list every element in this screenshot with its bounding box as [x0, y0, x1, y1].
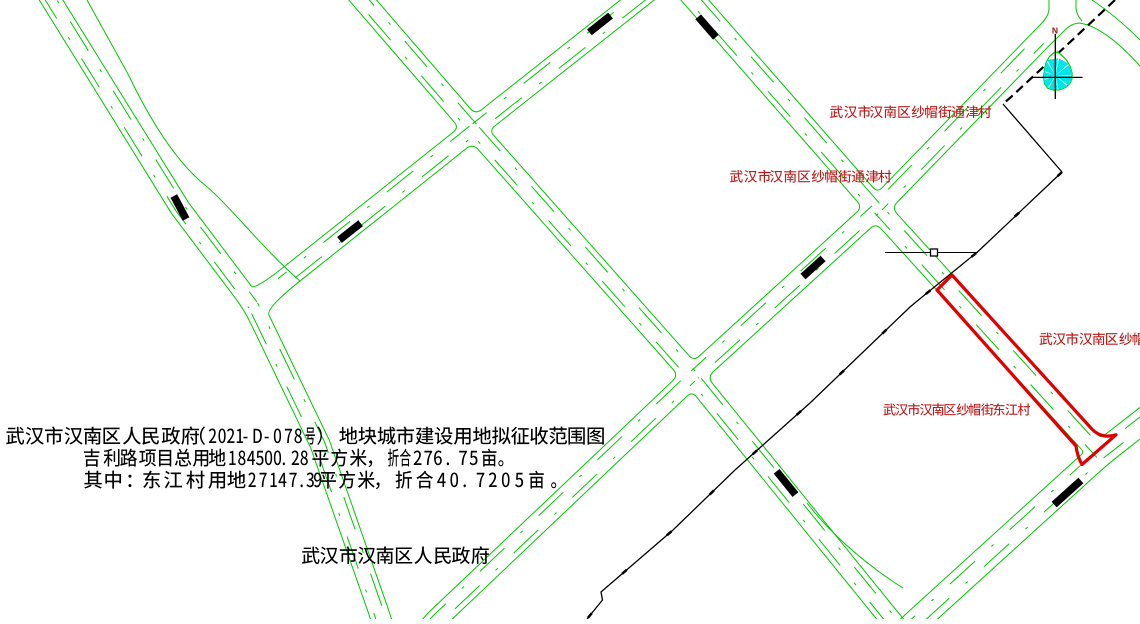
- svg-text:N: N: [1052, 26, 1058, 36]
